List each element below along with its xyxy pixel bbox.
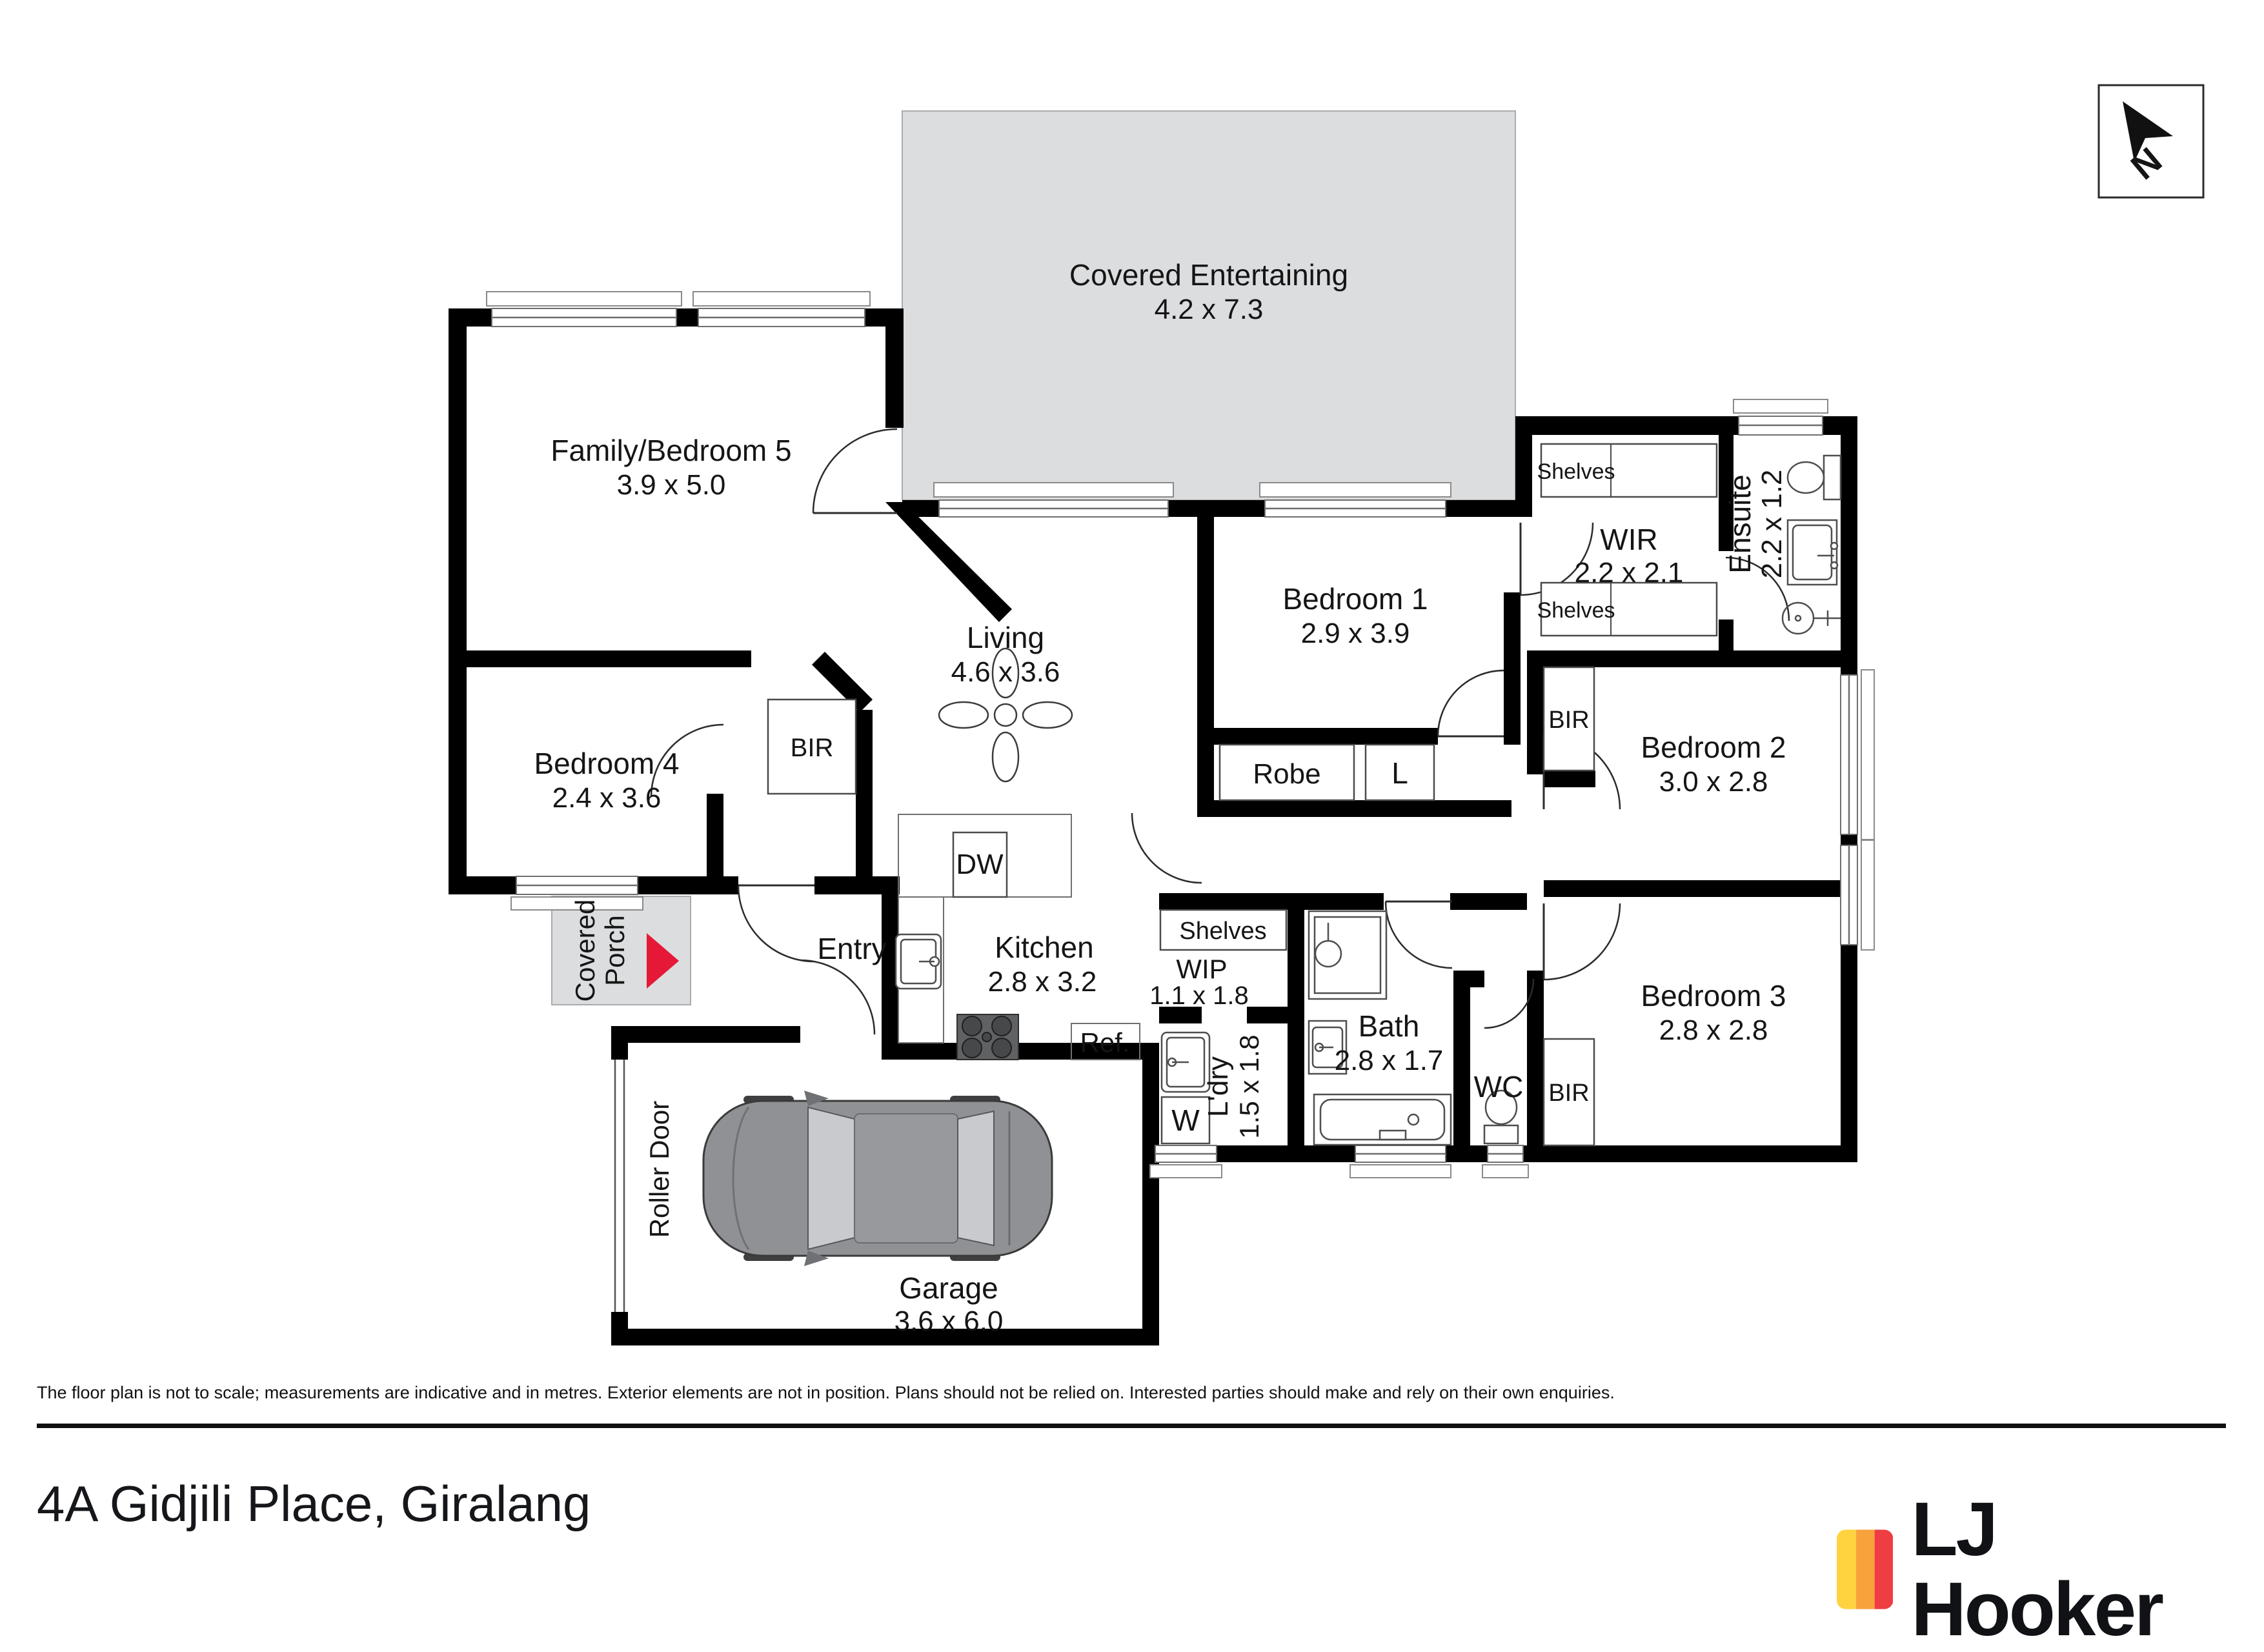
label-washer: W xyxy=(1171,1103,1200,1137)
dims-bath: 2.8 x 1.7 xyxy=(1335,1045,1444,1076)
bathtub-icon xyxy=(1314,1094,1451,1145)
label-entry: Entry xyxy=(817,932,886,965)
dims-bedroom3: 2.8 x 2.8 xyxy=(1659,1014,1768,1046)
label-ensuite: Ensuite xyxy=(1723,474,1757,573)
label-bedroom1: Bedroom 1 xyxy=(1282,582,1428,616)
roller-door xyxy=(612,1060,627,1312)
disclaimer-text: The floor plan is not to scale; measurem… xyxy=(37,1383,1615,1403)
ljhooker-stripes-icon xyxy=(1837,1529,1893,1609)
label-kitchen: Kitchen xyxy=(995,931,1093,964)
sink-icon xyxy=(896,934,941,989)
ljhooker-wordmark: LJ Hooker xyxy=(1911,1489,2264,1649)
label-bir-bedroom4: BIR xyxy=(791,734,834,762)
dims-ensuite: 2.2 x 1.2 xyxy=(1756,470,1788,579)
floorplan-page: { "north": {"label": "N"}, "rooms": { "c… xyxy=(0,0,2264,1600)
label-linen: L xyxy=(1391,756,1408,790)
label-covered-porch-2: Porch xyxy=(600,915,630,986)
floor-plan: N Covered Entertaining 4.2 x 7.3 Family/… xyxy=(0,0,2264,1600)
north-arrow: N xyxy=(2099,85,2203,197)
shower-icon xyxy=(1309,911,1386,999)
label-wip: WIP xyxy=(1176,954,1227,984)
ensuite-shower-rose-icon xyxy=(1783,603,1841,634)
label-shelves-wir-bottom: Shelves xyxy=(1537,598,1615,623)
label-bath: Bath xyxy=(1359,1009,1420,1043)
label-bedroom2: Bedroom 2 xyxy=(1641,730,1786,764)
dims-wir: 2.2 x 2.1 xyxy=(1575,557,1684,589)
label-bir-bedroom3: BIR xyxy=(1548,1080,1589,1107)
label-wc: WC xyxy=(1474,1070,1524,1103)
ensuite-toilet-icon xyxy=(1788,456,1841,499)
dims-bedroom2: 3.0 x 2.8 xyxy=(1659,766,1768,798)
property-address: 4A Gidjili Place, Giralang xyxy=(37,1475,591,1533)
label-laundry: L'dry xyxy=(1202,1056,1234,1117)
dims-family-bedroom5: 3.9 x 5.0 xyxy=(617,469,726,501)
label-robe: Robe xyxy=(1253,758,1320,790)
footer-divider xyxy=(37,1424,2226,1428)
dims-bedroom1: 2.9 x 3.9 xyxy=(1301,618,1410,649)
dims-garage: 3.6 x 6.0 xyxy=(894,1305,1004,1337)
ensuite-fixtures xyxy=(1783,456,1841,634)
dims-living: 4.6 x 3.6 xyxy=(951,656,1060,688)
dims-covered-entertaining: 4.2 x 7.3 xyxy=(1155,294,1264,325)
cooktop-icon xyxy=(957,1014,1018,1060)
dims-wip: 1.1 x 1.8 xyxy=(1149,982,1248,1010)
label-covered-entertaining: Covered Entertaining xyxy=(1069,258,1348,292)
label-ref: Ref. xyxy=(1080,1027,1129,1058)
label-living: Living xyxy=(967,621,1044,654)
label-bedroom4: Bedroom 4 xyxy=(534,747,679,780)
car-icon xyxy=(703,1091,1052,1266)
label-dw: DW xyxy=(956,849,1004,880)
label-shelves-wir-top: Shelves xyxy=(1537,459,1615,484)
label-roller-door: Roller Door xyxy=(644,1101,674,1238)
label-wir: WIR xyxy=(1600,523,1657,556)
ensuite-vanity-icon xyxy=(1788,520,1837,585)
label-covered-porch-1: Covered xyxy=(570,900,600,1002)
label-shelves-wip: Shelves xyxy=(1179,918,1266,945)
dims-bedroom4: 2.4 x 3.6 xyxy=(552,782,662,814)
label-bedroom3: Bedroom 3 xyxy=(1641,979,1786,1012)
label-garage: Garage xyxy=(899,1271,998,1305)
dims-kitchen: 2.8 x 3.2 xyxy=(988,966,1097,998)
label-family-bedroom5: Family/Bedroom 5 xyxy=(551,434,791,467)
ljhooker-logo: LJ Hooker xyxy=(1837,1489,2264,1649)
label-bir-bedroom2: BIR xyxy=(1548,707,1589,734)
dims-laundry: 1.5 x 1.8 xyxy=(1234,1034,1264,1138)
